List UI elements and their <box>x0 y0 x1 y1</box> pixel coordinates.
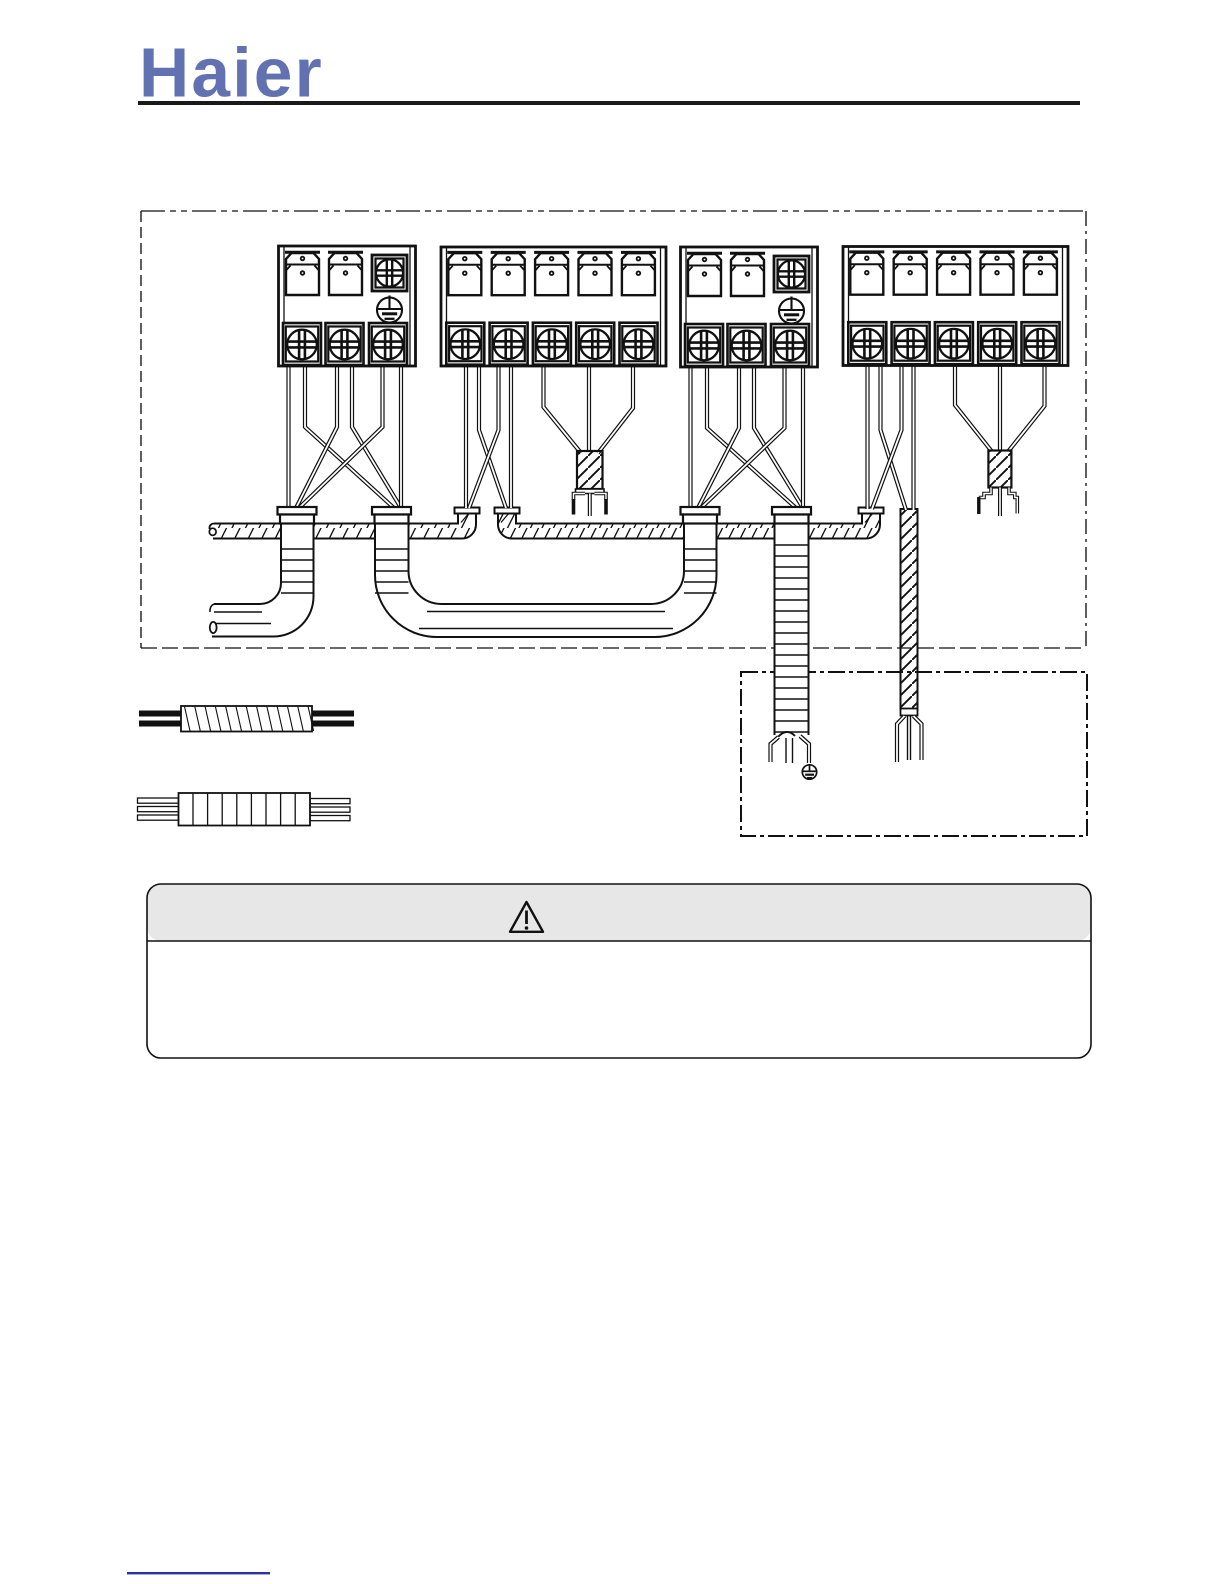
svg-text:Haier: Haier <box>139 34 324 112</box>
